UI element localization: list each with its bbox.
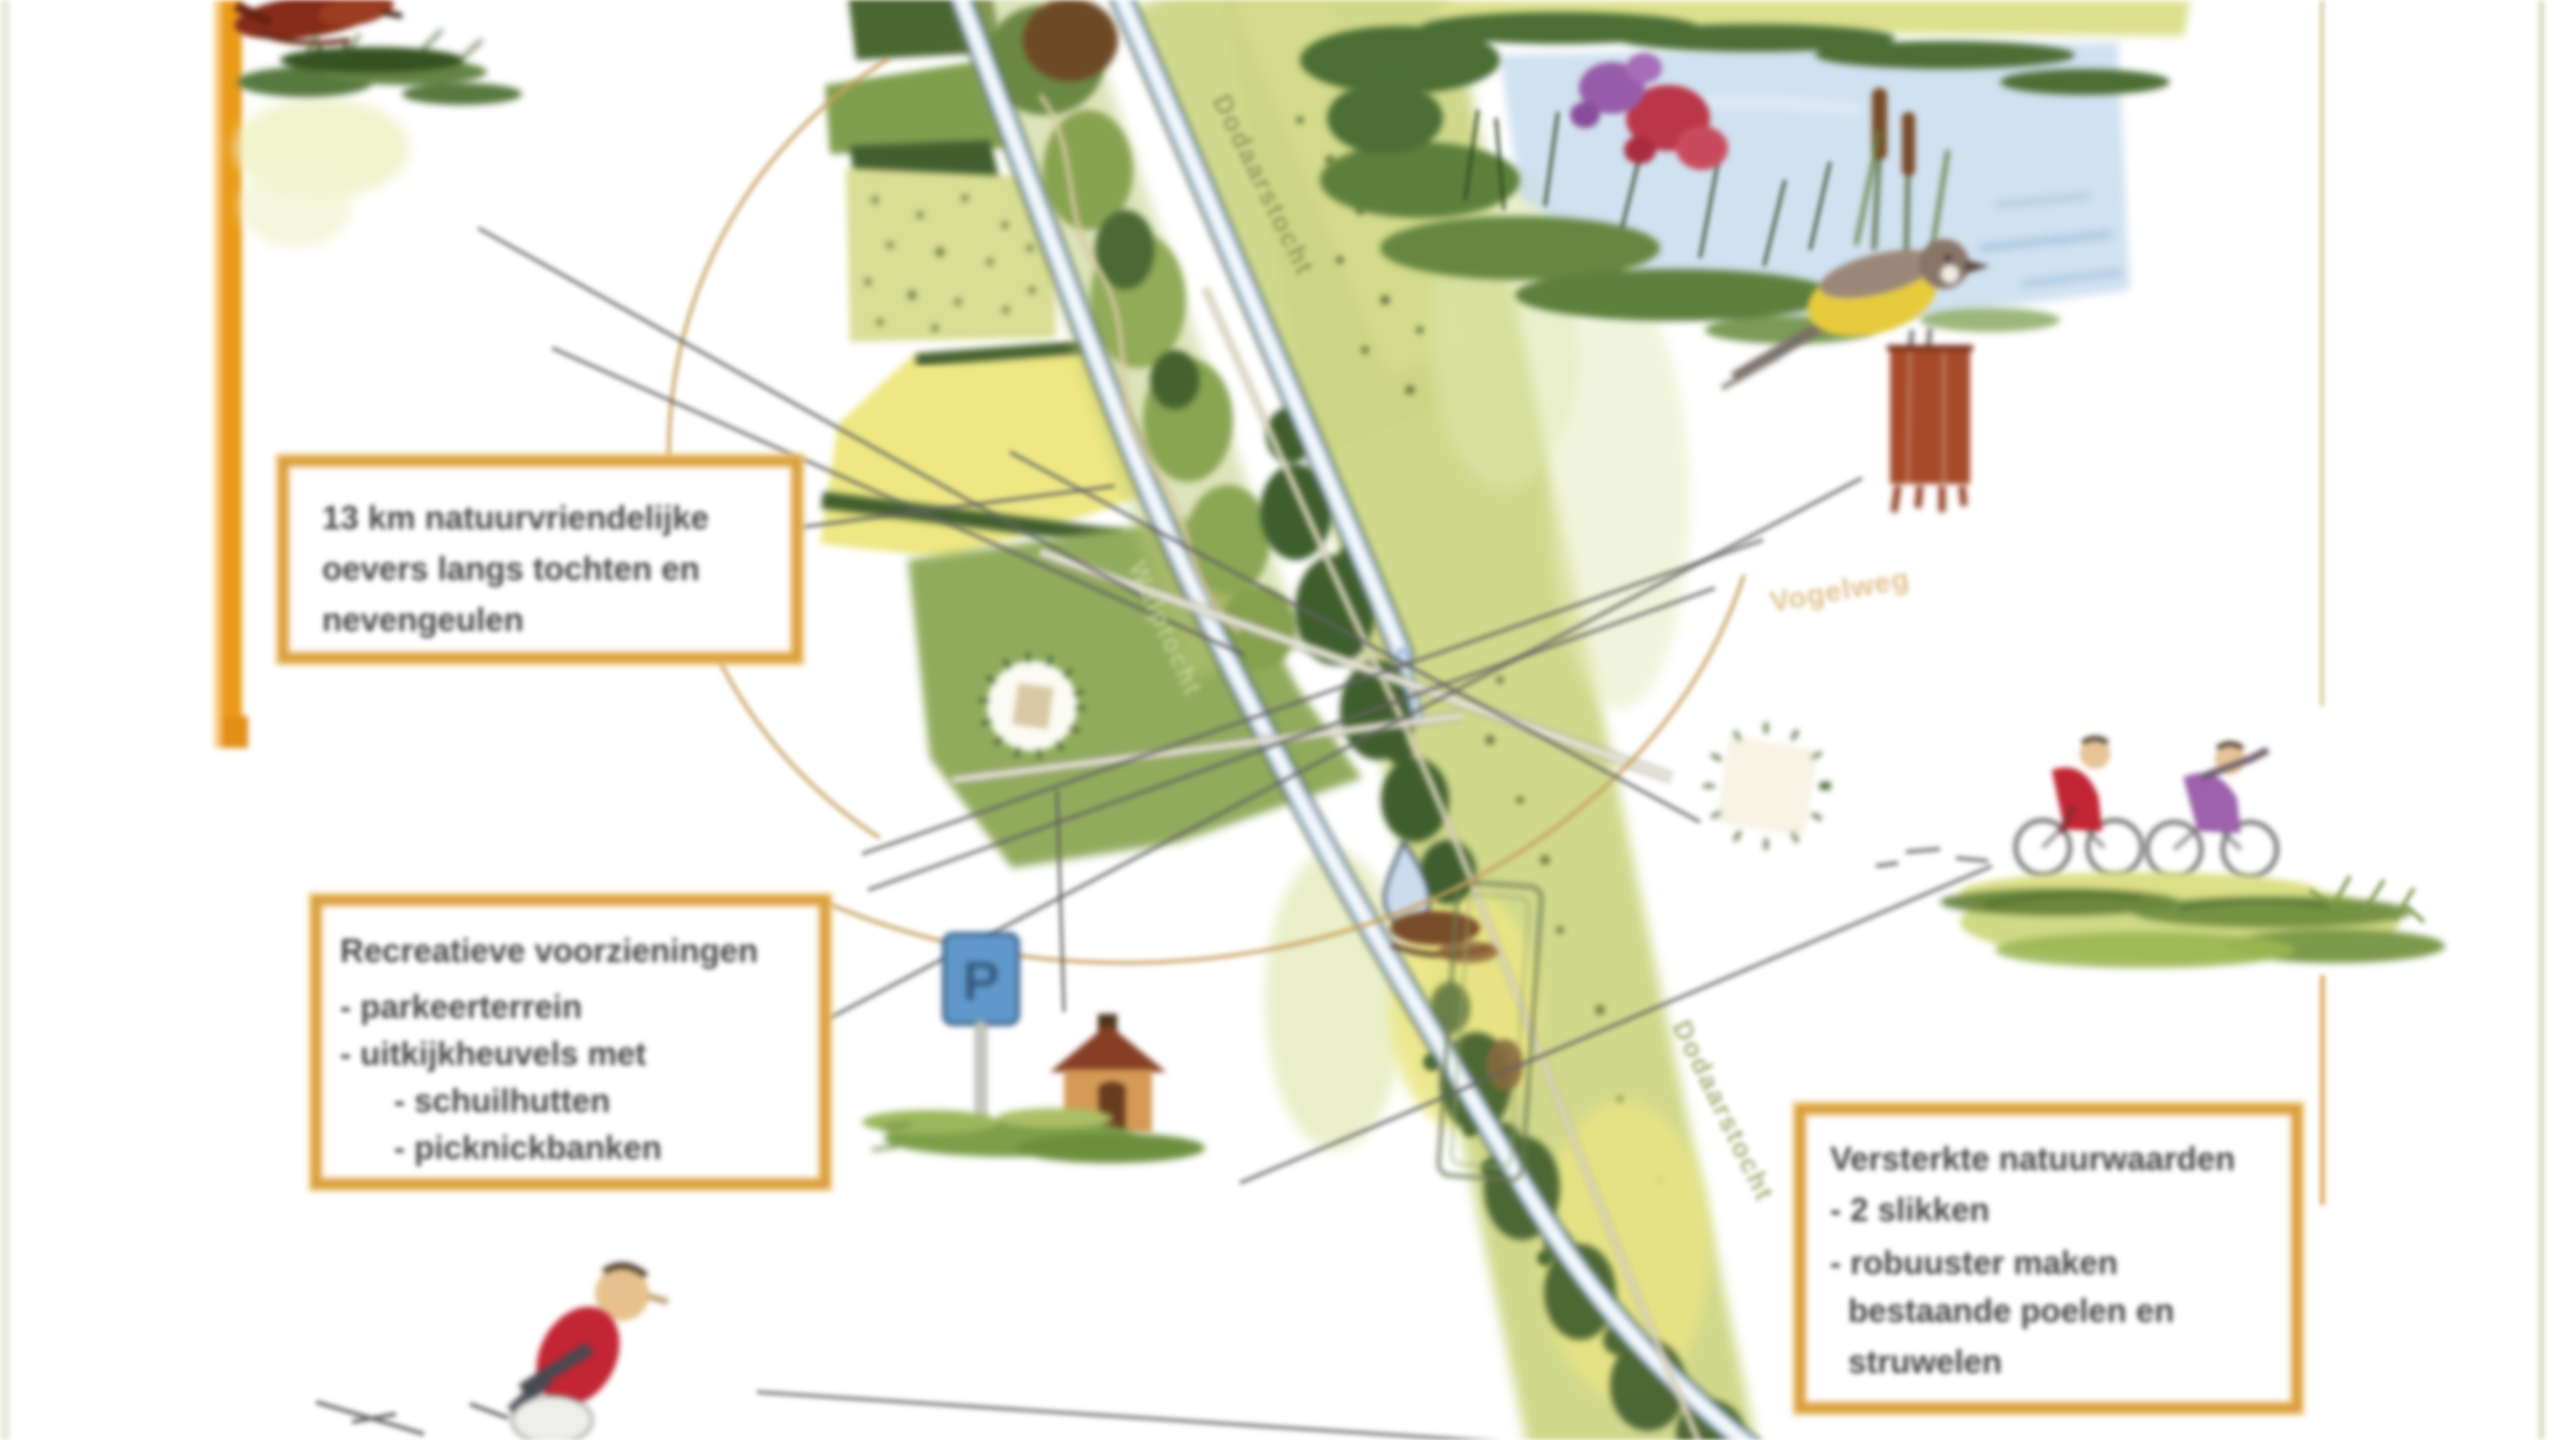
svg-text:P: P [962, 949, 999, 1012]
svg-text:bestaande poelen en: bestaande poelen en [1848, 1292, 2174, 1329]
svg-text:nevengeulen: nevengeulen [322, 601, 524, 638]
svg-text:- schuilhutten: - schuilhutten [394, 1082, 610, 1119]
svg-text:- 2 slikken: - 2 slikken [1830, 1191, 1990, 1228]
svg-text:13 km natuurvriendelijke: 13 km natuurvriendelijke [322, 499, 709, 536]
svg-text:oevers langs tochten en: oevers langs tochten en [322, 550, 700, 587]
svg-text:struwelen: struwelen [1848, 1343, 2002, 1380]
svg-text:- picknickbanken: - picknickbanken [394, 1129, 662, 1166]
svg-text:- robuuster maken: - robuuster maken [1830, 1244, 2118, 1281]
svg-text:Versterkte natuurwaarden: Versterkte natuurwaarden [1830, 1140, 2235, 1177]
svg-text:Recreatieve voorzieningen: Recreatieve voorzieningen [340, 932, 758, 969]
svg-text:- uitkijkheuvels met: - uitkijkheuvels met [340, 1035, 646, 1072]
svg-text:- parkeerterrein: - parkeerterrein [340, 988, 582, 1025]
